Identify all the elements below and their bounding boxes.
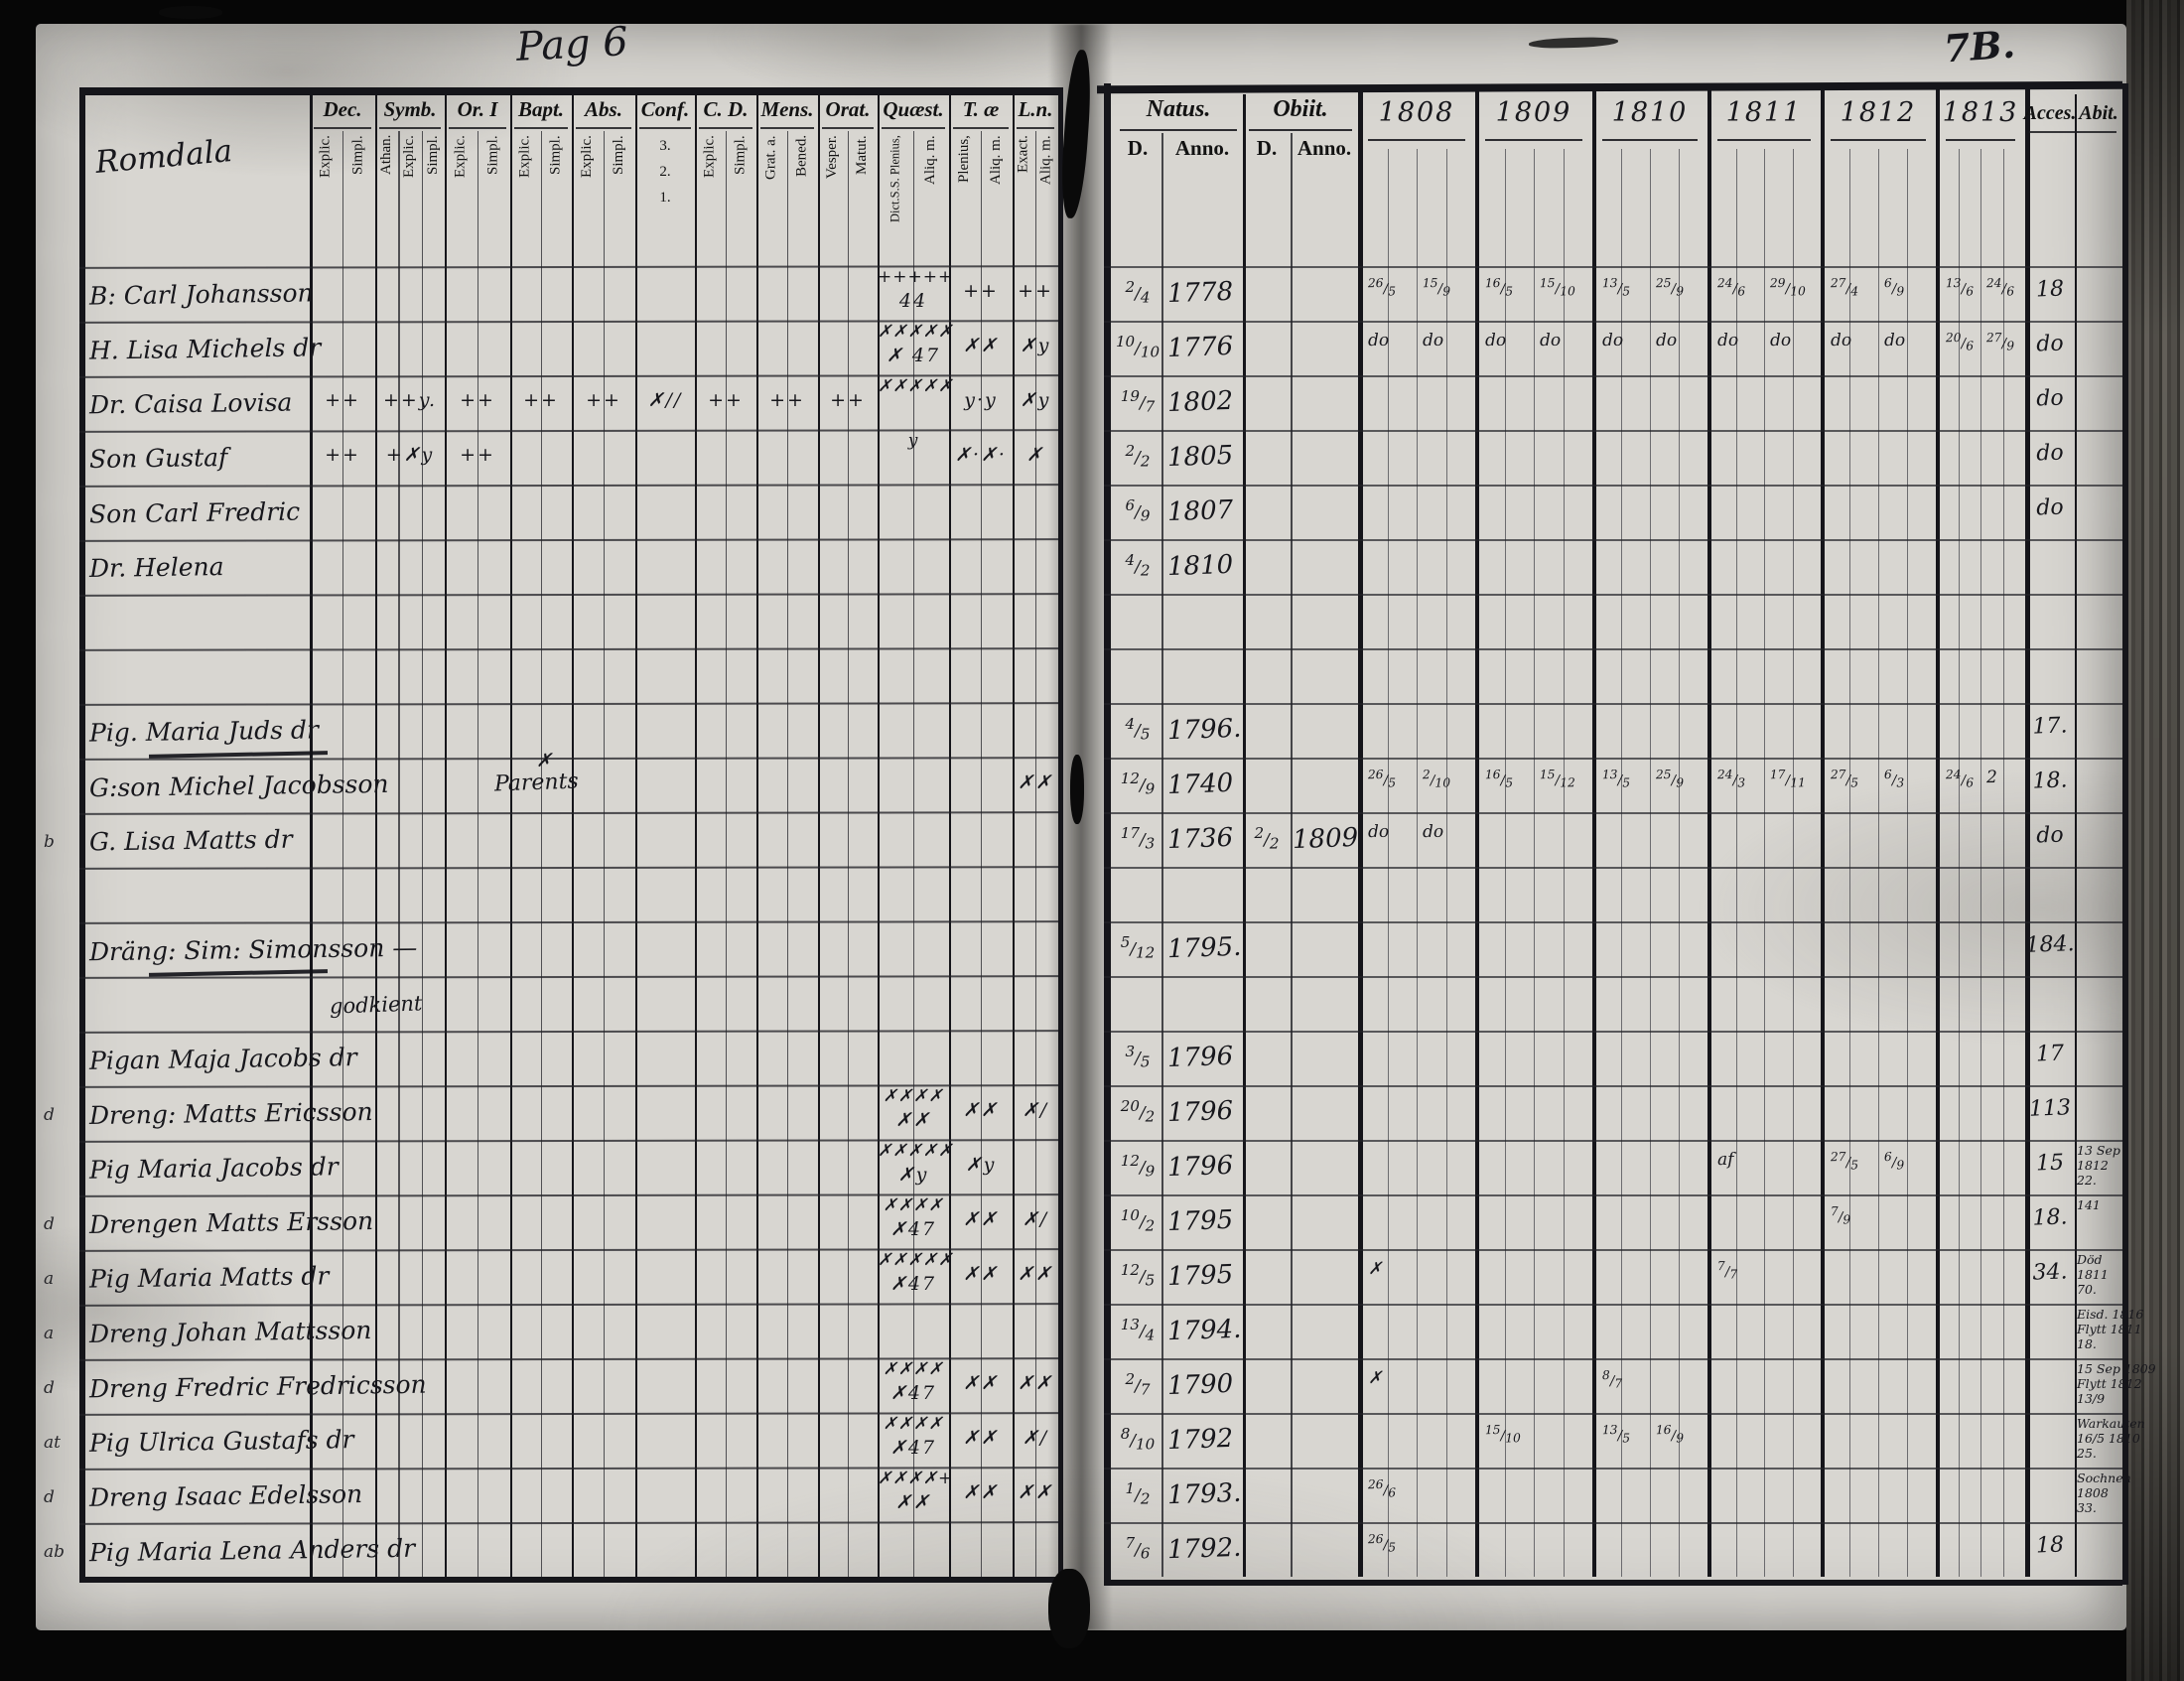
tally-marks-ln: ✗ <box>1013 446 1058 466</box>
obiit-header: Obiit. <box>1243 97 1358 122</box>
tally-marks-ln: ✗y <box>1013 337 1058 356</box>
subcolumn-label-abs-0: Explic. <box>572 135 604 262</box>
column-header-abs: Abs. <box>572 98 635 120</box>
entry-name: Dreng Johan Mattsson <box>89 1318 372 1347</box>
tally-marks-symb: ++y. <box>375 391 445 411</box>
natus-day: 12/9 <box>1114 770 1161 798</box>
margin-letter: d <box>44 1489 55 1507</box>
column-header-underline <box>639 127 691 129</box>
entry-name: Pig. Maria Juds dr <box>89 717 319 746</box>
margin-letter: d <box>44 1107 55 1125</box>
year-underline <box>1602 139 1698 141</box>
attendance-date: 27/5 <box>1831 768 1858 790</box>
column-header-conf: Conf. <box>635 98 695 120</box>
entry-name: Dreng Fredric Fredricsson <box>89 1372 427 1403</box>
entry-name: Son Gustaf <box>89 445 228 473</box>
entry-name: Dr. Helena <box>89 554 224 582</box>
tally-marks-quaest: ✗✗✗✗ <box>878 1088 949 1106</box>
year-subcolumn-line <box>1650 149 1651 1577</box>
year-column-divider <box>1707 89 1711 1577</box>
acces-value: 17. <box>2023 714 2078 739</box>
column-group-divider <box>1013 94 1015 1577</box>
attendance-date: 27/9 <box>1986 331 2014 353</box>
attendance-date: do <box>1717 331 1738 350</box>
column-header-underline <box>314 127 371 129</box>
subcolumn-label-quaest-0: Dict.S.S. Plenius, <box>878 135 913 262</box>
natus-day: 17/3 <box>1114 824 1161 853</box>
abit-note-line: Flytt 1811 <box>2077 1323 2132 1335</box>
subcolumn-divider <box>787 131 788 1577</box>
subcolumn-label-tae-0: Plenius, <box>949 135 981 262</box>
year-underline <box>1946 139 2015 141</box>
natus-underline <box>1120 129 1237 131</box>
left-page-inner-right-border <box>1058 87 1063 1583</box>
abit-note-line: 70. <box>2077 1283 2132 1296</box>
tally-marks-symb: +✗y <box>375 446 445 466</box>
column-group-divider <box>756 94 758 1577</box>
natus-year: 1810 <box>1167 552 1234 582</box>
year-header-1808: 1808 <box>1358 99 1475 127</box>
attendance-date: 16/9 <box>1656 1423 1684 1446</box>
attendance-date: 8/7 <box>1602 1368 1623 1391</box>
tally-marks-quaest: ✗✗✗✗✗ <box>878 378 949 396</box>
abit-note-line: Död <box>2077 1253 2132 1266</box>
subcolumn-divider <box>726 131 727 1577</box>
subcolumn-label-symb-2: Simpl. <box>422 135 445 262</box>
tally-marks-quaest: ✗✗✗✗ <box>878 1197 949 1215</box>
attendance-date: af <box>1717 1150 1734 1170</box>
acces-value: 17 <box>2023 1042 2078 1066</box>
acces-value: 18 <box>2023 1533 2078 1558</box>
row-line-right <box>1104 1413 2122 1415</box>
subcolumn-label-abs-1: Simpl. <box>604 135 635 262</box>
natus-year: 1796 <box>1167 1098 1234 1128</box>
natus-year: 1796 <box>1167 1044 1234 1073</box>
entry-name: G. Lisa Matts dr <box>89 827 293 856</box>
natus-year: 1740 <box>1167 770 1234 800</box>
subcolumn-divider <box>848 131 849 1577</box>
year-subcolumn-line <box>1446 149 1447 1577</box>
row-line-right <box>1104 1031 2122 1033</box>
row-line-right <box>1104 867 2122 869</box>
tally-marks-tae: y·y <box>949 391 1013 411</box>
subcolumn-label-ori-1: Simpl. <box>478 135 510 262</box>
tally-marks-quaest: ✗✗ <box>878 1493 949 1513</box>
year-header-1812: 1812 <box>1821 99 1936 127</box>
abit-note-line: 1808 <box>2077 1486 2132 1499</box>
attendance-date: 6/9 <box>1884 276 1905 299</box>
year-header-1813: 1813 <box>1936 99 2025 127</box>
natus-day: 2/7 <box>1114 1370 1161 1399</box>
natus-d-subheader: D. <box>1114 137 1161 159</box>
attendance-date: 25/9 <box>1656 768 1684 790</box>
tally-marks-bapt: ++ <box>510 391 572 411</box>
attendance-date: 15/9 <box>1423 276 1450 299</box>
attendance-date: 24/6 <box>1717 276 1745 299</box>
column-header-underline <box>699 127 752 129</box>
acces-value: 18. <box>2023 1205 2078 1230</box>
subcolumn-label-ori-0: Explic. <box>445 135 478 262</box>
margin-letter: d <box>44 1380 55 1398</box>
natus-day: 3/5 <box>1114 1043 1161 1071</box>
natus-header: Natus. <box>1114 97 1243 122</box>
attendance-date: 2 <box>1986 768 1997 787</box>
attendance-date: 7/7 <box>1717 1259 1738 1282</box>
attendance-date: 27/4 <box>1831 276 1858 299</box>
natus-day: 2/4 <box>1114 278 1161 307</box>
tally-marks-ln: ✗✗ <box>1013 1374 1058 1394</box>
row-line-right <box>1104 1249 2122 1251</box>
natus-day: 2/2 <box>1114 442 1161 471</box>
abit-note-line: 1811 <box>2077 1268 2132 1281</box>
obiit-underline <box>1249 129 1352 131</box>
natus-year: 1802 <box>1167 388 1234 418</box>
natus-year: 1736 <box>1167 825 1234 855</box>
attendance-date: 16/5 <box>1485 768 1513 790</box>
tally-marks-quaest: ✗✗✗✗ <box>878 1416 949 1434</box>
left-page-number: Pag 6 <box>515 19 629 70</box>
left-page-bottom-border <box>79 1577 1058 1583</box>
natus-year: 1778 <box>1167 279 1234 309</box>
year-column-divider <box>1821 89 1825 1577</box>
natus-year: 1792. <box>1167 1535 1242 1565</box>
row-line-right <box>1104 648 2122 650</box>
tally-marks-dec: ++ <box>310 391 375 411</box>
year-subcolumn-line <box>1878 149 1879 1577</box>
entry-name: Dreng: Matts Ericsson <box>89 1099 373 1129</box>
abit-note-line: Sochnen <box>2077 1471 2132 1484</box>
column-header-underline <box>882 127 945 129</box>
subcolumn-label-mens-1: Bened. <box>787 135 818 262</box>
column-header-orat: Orat. <box>818 98 878 120</box>
column-header-ln: L.n. <box>1013 98 1058 120</box>
attendance-date: 15/12 <box>1540 768 1575 790</box>
ink-blot <box>159 6 222 19</box>
natus-day: 10/10 <box>1114 333 1161 361</box>
subcolumn-label-quaest-1: Aliq. m. <box>913 135 949 262</box>
row-line-right <box>1104 1085 2122 1087</box>
natus-year: 1805 <box>1167 443 1234 473</box>
marginal-note: godkient <box>330 992 423 1017</box>
margin-letter: b <box>44 834 55 852</box>
row-line-right <box>1104 1194 2122 1196</box>
abit-note-line: Eisd. 1816 <box>2077 1308 2132 1321</box>
abit-note-line: 22. <box>2077 1174 2132 1187</box>
column-header-underline <box>822 127 874 129</box>
year-header-1811: 1811 <box>1707 99 1821 127</box>
abit-note-line: 15 Sep 1809 <box>2077 1362 2132 1375</box>
attendance-date: do <box>1540 331 1561 350</box>
natus-year: 1793. <box>1167 1480 1242 1510</box>
attendance-date: 15/10 <box>1485 1423 1521 1446</box>
attendance-date: 17/11 <box>1770 768 1806 790</box>
abit-note-line: 18. <box>2077 1337 2132 1350</box>
tally-marks-quaest: ✗✗ <box>878 1111 949 1131</box>
year-subcolumn-line <box>1793 149 1794 1577</box>
tally-marks-tae: ++ <box>949 282 1013 302</box>
attendance-date: 26/5 <box>1368 276 1396 299</box>
tally-marks-ln: ✗✗ <box>1013 1265 1058 1285</box>
entry-name: B: Carl Johansson <box>89 280 314 309</box>
tally-marks-quaest: y <box>878 433 949 451</box>
natus-anno-subheader: Anno. <box>1161 137 1243 159</box>
column-header-symb: Symb. <box>375 98 445 120</box>
natus-day: 7/6 <box>1114 1534 1161 1563</box>
attendance-date: 24/6 <box>1986 276 2014 299</box>
column-header-underline <box>1017 127 1054 129</box>
entry-name: Pig Maria Matts dr <box>89 1263 330 1293</box>
row-line-right <box>1104 594 2122 596</box>
abit-note-line: Flytt 1812 <box>2077 1377 2132 1390</box>
year-underline <box>1717 139 1811 141</box>
tally-marks-tae: ✗✗ <box>949 1483 1013 1503</box>
natus-day: 4/2 <box>1114 551 1161 580</box>
row-line-right <box>1104 1304 2122 1306</box>
tally-marks-ln: ✗✗ <box>1013 1483 1058 1503</box>
ink-blot <box>1048 1569 1090 1648</box>
natus-day: 13/4 <box>1114 1316 1161 1344</box>
acces-value: do <box>2023 441 2078 466</box>
subcolumn-label-dec-1: Simpl. <box>342 135 375 262</box>
margin-letter: a <box>44 1326 54 1343</box>
tally-marks-quaest: ✗47 <box>878 1275 949 1295</box>
tally-marks-tae: ✗✗ <box>949 1210 1013 1230</box>
natus-year: 1795 <box>1167 1262 1234 1292</box>
attendance-date: do <box>1485 331 1506 350</box>
abit-note-line: 13 Sep <box>2077 1144 2132 1157</box>
subcolumn-label-orat-0: Vesper. <box>818 135 848 262</box>
tally-marks-ln: ✗✗ <box>1013 773 1058 793</box>
abit-note-line: 25. <box>2077 1447 2132 1460</box>
attendance-date: 16/5 <box>1485 276 1513 299</box>
margin-letter: a <box>44 1271 54 1289</box>
attendance-date: 24/6 <box>1946 768 1974 790</box>
attendance-date: 20/6 <box>1946 331 1974 353</box>
natus-year: 1807 <box>1167 497 1234 527</box>
column-header-bapt: Bapt. <box>510 98 572 120</box>
acces-value: 184. <box>2023 932 2078 957</box>
entry-name: H. Lisa Michels dr <box>89 335 322 364</box>
tally-marks-quaest: ✗y <box>878 1166 949 1186</box>
left-page-top-border <box>79 87 1058 95</box>
acces-value: 18. <box>2023 769 2078 793</box>
subcolumn-label-tae-1: Aliq. m. <box>981 135 1013 262</box>
attendance-date: 6/9 <box>1884 1150 1905 1173</box>
attendance-date: do <box>1884 331 1905 350</box>
abit-note-line: 1812 <box>2077 1159 2132 1172</box>
column-header-underline <box>576 127 631 129</box>
tally-marks-ori: ++ <box>445 391 510 411</box>
attendance-date: 24/3 <box>1717 768 1745 790</box>
tally-marks-tae: ✗✗ <box>949 1101 1013 1121</box>
attendance-date: 26/6 <box>1368 1477 1396 1500</box>
column-header-underline <box>953 127 1009 129</box>
subcolumn-label-cd-1: Simpl. <box>726 135 756 262</box>
year-subcolumn-line <box>1505 149 1506 1577</box>
entry-name: Pig Maria Lena Anders dr <box>89 1536 415 1567</box>
subcolumn-label-bapt-0: Explic. <box>510 135 541 262</box>
natus-year: 1796. <box>1167 716 1242 746</box>
ink-blot <box>1070 755 1084 824</box>
scanned-register-photo: Pag 6 7B. Romdala Dec.Explic.Simpl.Symb.… <box>0 0 2184 1681</box>
acces-value: do <box>2023 332 2078 356</box>
row-line-right <box>1104 430 2122 432</box>
column-header-mens: Mens. <box>756 98 818 120</box>
year-subcolumn-line <box>1907 149 1908 1577</box>
natus-year: 1790 <box>1167 1371 1234 1401</box>
column-group-divider <box>375 94 377 1577</box>
row-line-right <box>1104 758 2122 760</box>
subcolumn-label-ln-0: Exact. <box>1013 135 1035 262</box>
attendance-date: 26/5 <box>1368 1532 1396 1555</box>
abit-note-line: 13/9 <box>2077 1392 2132 1405</box>
natus-day: 12/5 <box>1114 1261 1161 1290</box>
column-group-divider <box>695 94 697 1577</box>
tally-marks-quaest: ✗47 <box>878 1384 949 1404</box>
column-header-dec: Dec. <box>310 98 375 120</box>
tally-marks-ln: ✗/ <box>1013 1210 1058 1230</box>
attendance-date: 27/5 <box>1831 1150 1858 1173</box>
margin-letter: d <box>44 1216 55 1234</box>
acces-value: 18 <box>2023 277 2078 302</box>
column-group-divider <box>510 94 512 1577</box>
year-subcolumn-line <box>1564 149 1565 1577</box>
row-line-right <box>1104 812 2122 814</box>
attendance-date: 29/10 <box>1770 276 1806 299</box>
natus-year: 1776 <box>1167 334 1234 363</box>
year-subcolumn-line <box>1679 149 1680 1577</box>
tally-marks-tae: ✗✗ <box>949 1429 1013 1449</box>
entry-name: Pig Maria Jacobs dr <box>89 1154 339 1184</box>
attendance-date: do <box>1656 331 1677 350</box>
row-line-right <box>1104 1468 2122 1470</box>
tally-marks-mens: ++ <box>756 391 818 411</box>
acces-underline <box>2029 131 2116 133</box>
year-subcolumn-line <box>1980 149 1981 1577</box>
abit-note-line: 16/5 1810 <box>2077 1432 2132 1445</box>
year-subcolumn-line <box>1534 149 1535 1577</box>
year-underline <box>1485 139 1582 141</box>
year-underline <box>1831 139 1926 141</box>
name-column-border <box>310 94 313 1577</box>
column-header-tae: T. æ <box>949 98 1013 120</box>
row-line-right <box>1104 1522 2122 1524</box>
subcolumn-label-cd-0: Explic. <box>695 135 726 262</box>
attendance-date: do <box>1368 822 1389 842</box>
row-line-right <box>1104 375 2122 377</box>
row-line-right <box>1104 539 2122 541</box>
attendance-date: 13/5 <box>1602 1423 1630 1446</box>
attendance-date: do <box>1368 331 1389 350</box>
natus-day: 4/5 <box>1114 715 1161 744</box>
row-line-right <box>1104 1358 2122 1360</box>
year-subcolumn-line <box>1849 149 1850 1577</box>
tally-marks-quaest: ✗✗✗✗✗ <box>878 324 949 342</box>
abit-note-line: 33. <box>2077 1501 2132 1514</box>
natus-day: 1/2 <box>1114 1479 1161 1508</box>
attendance-date: ✗ <box>1368 1368 1383 1388</box>
attendance-date: 13/5 <box>1602 276 1630 299</box>
year-subcolumn-line <box>2003 149 2004 1577</box>
note-text: Parents <box>494 770 580 796</box>
attendance-date: do <box>1423 331 1443 350</box>
attendance-date: 2/10 <box>1423 768 1450 790</box>
year-subcolumn-line <box>1621 149 1622 1577</box>
column-group-divider <box>445 94 447 1577</box>
natus-day: 8/10 <box>1114 1425 1161 1454</box>
row-line-right <box>1104 485 2122 487</box>
attendance-date: do <box>1602 331 1623 350</box>
tally-marks-tae: ✗·✗· <box>949 446 1013 466</box>
row-line-right <box>1104 1140 2122 1142</box>
entry-name: Dreng Isaac Edelsson <box>89 1481 363 1511</box>
natus-day: 10/2 <box>1114 1206 1161 1235</box>
tally-marks-dec: ++ <box>310 446 375 466</box>
abit-header: Abit. <box>2075 103 2122 124</box>
subcolumn-label-ln-1: Aliq. m. <box>1035 135 1058 262</box>
natus-day: 5/12 <box>1114 933 1161 962</box>
entry-name: Dr. Caisa Lovisa <box>89 390 293 419</box>
attendance-date: do <box>1831 331 1851 350</box>
attendance-date: 13/6 <box>1946 276 1974 299</box>
year-subcolumn-line <box>1959 149 1960 1577</box>
tally-marks-conf: ✗// <box>635 391 695 411</box>
natus-year: 1796 <box>1167 1153 1234 1183</box>
acces-value: do <box>2023 386 2078 411</box>
tally-marks-tae: ✗✗ <box>949 1265 1013 1285</box>
row-line-right <box>1104 266 2122 268</box>
row-line-right <box>1104 976 2122 978</box>
attendance-date: 7/9 <box>1831 1204 1851 1227</box>
tally-marks-quaest: ✗✗✗✗✗ <box>878 1252 949 1270</box>
acces-value: 15 <box>2023 1151 2078 1176</box>
column-header-underline <box>449 127 506 129</box>
abit-note-line: 141 <box>2077 1198 2132 1211</box>
natus-day: 6/9 <box>1114 496 1161 525</box>
attendance-date: 13/5 <box>1602 768 1630 790</box>
natus-year: 1795 <box>1167 1207 1234 1237</box>
acces-header: Acces. <box>2021 103 2079 124</box>
acces-value: 113 <box>2023 1096 2078 1121</box>
subcolumn-label-mens-0: Grat. a. <box>756 135 787 262</box>
obiit-d-subheader: D. <box>1243 137 1291 159</box>
attendance-date: ✗ <box>1368 1259 1383 1279</box>
margin-letter: at <box>44 1435 61 1453</box>
year-underline <box>1368 139 1465 141</box>
year-column-divider <box>1475 89 1479 1577</box>
natus-day: 19/7 <box>1114 387 1161 416</box>
entry-name: Pigan Maja Jacobs dr <box>89 1045 357 1074</box>
right-page-number: 7B. <box>1943 22 2017 71</box>
entry-name: Pig Ulrica Gustafs dr <box>89 1427 354 1457</box>
obiit-years-divider <box>1358 89 1363 1577</box>
subcolumn-label-symb-0: Athan. <box>375 135 398 262</box>
year-header-1810: 1810 <box>1592 99 1707 127</box>
obiit-anno-subheader: Anno. <box>1291 137 1358 159</box>
row-line-right <box>1104 703 2122 705</box>
tally-marks-orat: ++ <box>818 391 878 411</box>
row-line-right <box>1104 321 2122 323</box>
subcolumn-label-conf-2: 1. <box>635 191 695 207</box>
tally-marks-quaest: ✗✗✗✗ <box>878 1361 949 1379</box>
entry-name: G:son Michel Jacobsson <box>89 771 389 801</box>
entry-name: Dräng: Sim: Simonsson — <box>89 935 418 966</box>
tally-marks-ln: ++ <box>1013 282 1058 302</box>
margin-letter: ab <box>44 1544 65 1562</box>
year-subcolumn-line <box>1417 149 1418 1577</box>
tally-marks-abs: ++ <box>572 391 635 411</box>
right-page-outer-border <box>2122 83 2128 1585</box>
